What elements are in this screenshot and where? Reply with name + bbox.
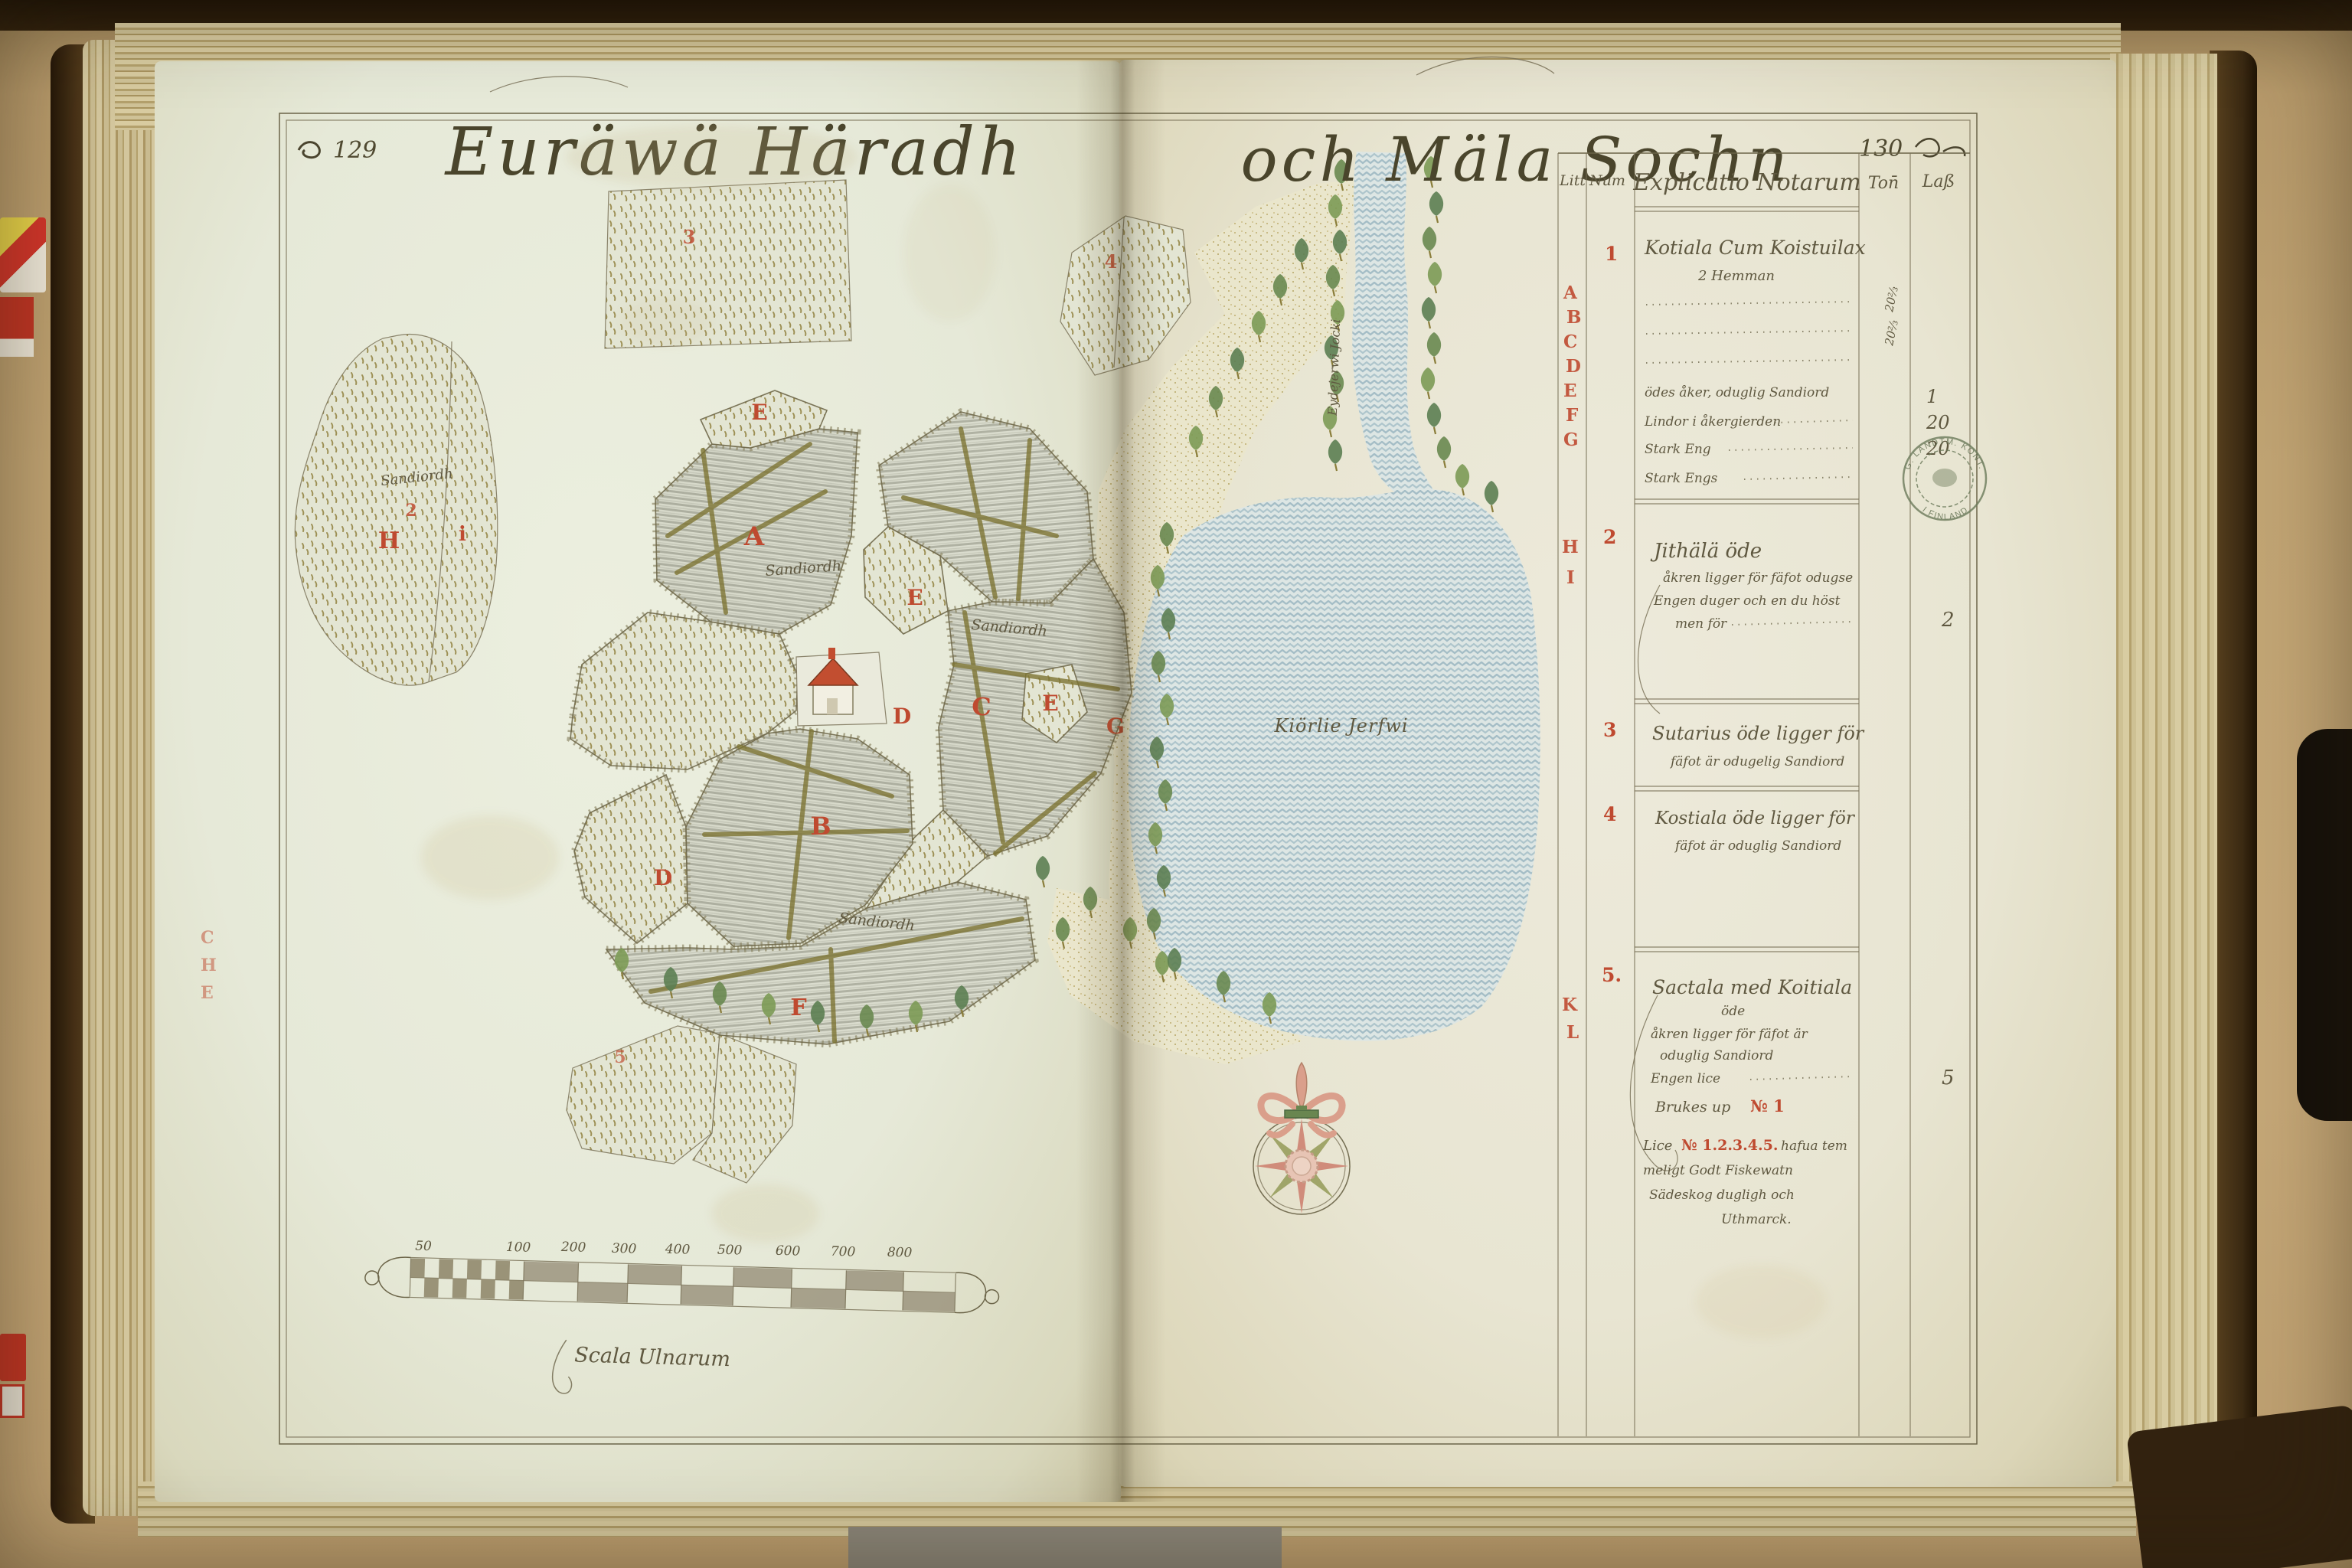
entry-note-pre: Lice xyxy=(1642,1138,1672,1154)
sticker-fragment xyxy=(0,1334,26,1381)
entry-line: åkren ligger för fäfot odugse xyxy=(1663,570,1853,586)
header-col2: Laß xyxy=(1922,172,1955,191)
field-letter-E-top: E xyxy=(751,400,767,425)
margin-showthrough-letters: C H E xyxy=(201,928,217,1003)
page-number-left: 129 xyxy=(333,137,377,164)
entry-value: 2 xyxy=(1941,609,1955,632)
litt-letter: L xyxy=(1566,1022,1579,1043)
sticker-fragment xyxy=(0,217,46,292)
side-value: 20⅔ xyxy=(1882,318,1901,348)
scale-tick-labels: 50 100 200 300 400 500 600 700 800 xyxy=(415,1232,913,1268)
lake xyxy=(1129,489,1540,1040)
sticker-fragment xyxy=(0,1384,24,1418)
litt-margin-letters: A B C D E F G H I K L xyxy=(1562,283,1581,1043)
entry-name: Jithälä öde xyxy=(1650,540,1762,563)
island-letter-i: i xyxy=(459,523,466,546)
entry-numbers: 1 2 3 4 5. xyxy=(1602,243,1622,986)
field-letter-E-mid: E xyxy=(906,585,923,610)
entry-num: 1 xyxy=(1605,243,1618,265)
meadow-field-5 xyxy=(567,1026,796,1183)
entry-value: 5 xyxy=(1942,1067,1955,1089)
entry-sub: öde xyxy=(1721,1004,1745,1019)
page-number-right: 130 xyxy=(1859,136,1903,162)
entry-line: Stark Engs xyxy=(1645,471,1718,486)
entry-value: 1 xyxy=(1926,386,1938,407)
scale-tick: 500 xyxy=(717,1243,743,1259)
field-letter-G: G xyxy=(1106,714,1125,739)
header-col1: Ton̄ xyxy=(1868,174,1899,193)
entry-line: Engen duger och en du höst xyxy=(1653,593,1841,609)
entry-note-post: hafua tem xyxy=(1781,1138,1847,1154)
field-letter-D-mid: D xyxy=(893,704,911,729)
field-letter-A: A xyxy=(743,521,765,552)
entry-line: ödes åker, oduglig Sandiord xyxy=(1645,385,1829,400)
entry-4: Kostiala öde ligger för fäfot är oduglig… xyxy=(1655,808,1856,854)
scale-tick: 50 xyxy=(415,1239,432,1255)
river xyxy=(1352,152,1438,496)
litt-letter: A xyxy=(1563,283,1578,303)
manuscript-photo: 50 100 200 300 400 500 600 700 800 Scala… xyxy=(0,0,2352,1568)
entry-name: Kotiala Cum Koistuilax xyxy=(1644,237,1866,259)
entry-num: 2 xyxy=(1603,526,1616,548)
entry-line: oduglig Sandiord xyxy=(1660,1048,1774,1063)
entry-num: 3 xyxy=(1603,719,1616,741)
field-letter-D-low: D xyxy=(654,865,672,890)
field-number-5: 5 xyxy=(614,1047,626,1067)
entry-line: fäfot är odugelig Sandiord xyxy=(1669,754,1844,769)
entry-name: Sutarius öde ligger för xyxy=(1652,723,1865,744)
scale-tick: 300 xyxy=(612,1241,637,1257)
entry-value: 20 xyxy=(1926,412,1950,433)
field-letter-F: F xyxy=(790,995,806,1021)
field-letter-C: C xyxy=(972,692,991,721)
dark-object-right xyxy=(2297,729,2352,1121)
entry-line: men för xyxy=(1675,616,1727,632)
field-letter-B: B xyxy=(810,812,831,841)
entry-note-line: Uthmarck. xyxy=(1721,1212,1792,1227)
entry-3: Sutarius öde ligger för fäfot är odugeli… xyxy=(1652,723,1865,769)
litt-letter: F xyxy=(1566,405,1579,426)
edge-letter: C xyxy=(201,928,214,948)
scale-tick: 200 xyxy=(560,1240,586,1256)
entry-line: fäfot är oduglig Sandiord xyxy=(1674,838,1841,854)
scale-tick: 100 xyxy=(506,1240,531,1256)
litt-letter: I xyxy=(1566,567,1575,588)
entry-line: Engen lice xyxy=(1650,1071,1720,1086)
village-fields xyxy=(570,390,1132,1044)
litt-letter: B xyxy=(1566,307,1581,328)
litt-letter: G xyxy=(1563,430,1579,450)
entry-line: Lindor i åkergierden xyxy=(1644,414,1781,430)
field-letter-E-right: E xyxy=(1042,691,1058,716)
litt-letter: C xyxy=(1563,332,1577,352)
entry-brukes-number: № 1 xyxy=(1750,1096,1785,1116)
cover-corner-bottom-right xyxy=(2126,1404,2352,1568)
edge-letter: H xyxy=(201,955,217,975)
sticker-fragment xyxy=(0,297,34,357)
field-number-4: 4 xyxy=(1105,250,1118,273)
entry-note-line: Sädeskog dugligh och xyxy=(1649,1187,1795,1203)
svg-text:I FINLAND: I FINLAND xyxy=(1921,505,1971,522)
entry-num: 4 xyxy=(1603,803,1616,825)
entry-sub: 2 Hemman xyxy=(1697,268,1775,284)
header-explicatio: Explicatio Notarum xyxy=(1632,169,1861,196)
meadow-field-4 xyxy=(1060,216,1191,375)
entry-5: Sactala med Koitiala öde åkren ligger fö… xyxy=(1630,976,1954,1227)
litt-letter: E xyxy=(1563,381,1577,401)
sand-island-HI xyxy=(295,335,497,686)
scale-tick: 700 xyxy=(831,1244,856,1260)
explicatio-table: Litt Num Explicatio Notarum Ton̄ Laß A B… xyxy=(1558,153,1987,1436)
litt-letter: D xyxy=(1566,356,1581,377)
scale-bar-label: Scala Ulnarum xyxy=(574,1343,731,1371)
entry-name: Kostiala öde ligger för xyxy=(1655,808,1856,828)
field-number-3: 3 xyxy=(683,226,696,248)
entry-brukes: Brukes up xyxy=(1655,1099,1730,1116)
litt-letter: H xyxy=(1562,537,1579,557)
table-strip-bottom xyxy=(848,1527,1282,1568)
entry-2: Jithälä öde åkren ligger för fäfot odugs… xyxy=(1638,540,1955,714)
litt-letter: K xyxy=(1562,995,1578,1015)
entry-note-line: meligt Godt Fiskewatn xyxy=(1643,1163,1793,1178)
entry-note-numbers: № 1.2.3.4.5. xyxy=(1681,1137,1778,1154)
header-num: Num xyxy=(1589,172,1625,189)
side-value: 20⅔ xyxy=(1882,285,1901,314)
entry-1: Kotiala Cum Koistuilax 2 Hemman 20⅔ 20⅔ … xyxy=(1644,237,1950,486)
river-label: Eydejerwi Jocki xyxy=(1325,318,1343,416)
scale-tick: 600 xyxy=(776,1243,801,1259)
scale-tick: 400 xyxy=(665,1242,691,1258)
scale-tick: 800 xyxy=(887,1245,913,1261)
header-litt: Litt xyxy=(1559,172,1586,189)
entry-line: åkren ligger för fäfot är xyxy=(1651,1027,1808,1042)
scale-bar: 50 100 200 300 400 500 600 700 800 Scala… xyxy=(362,1230,1000,1406)
entry-num: 5. xyxy=(1602,964,1622,986)
field-number-2: 2 xyxy=(405,501,416,521)
entry-name: Sactala med Koitiala xyxy=(1652,976,1852,998)
stamp-text-bottom: I FINLAND xyxy=(1921,505,1971,522)
map-artwork: 50 100 200 300 400 500 600 700 800 Scala… xyxy=(0,0,2352,1568)
compass-rose xyxy=(1253,1063,1350,1214)
island-letter-H: H xyxy=(378,528,400,554)
edge-letter: E xyxy=(201,983,214,1003)
lake-label: Kiörlie Jerfwi xyxy=(1273,715,1408,737)
entry-line: Stark Eng xyxy=(1645,442,1711,457)
